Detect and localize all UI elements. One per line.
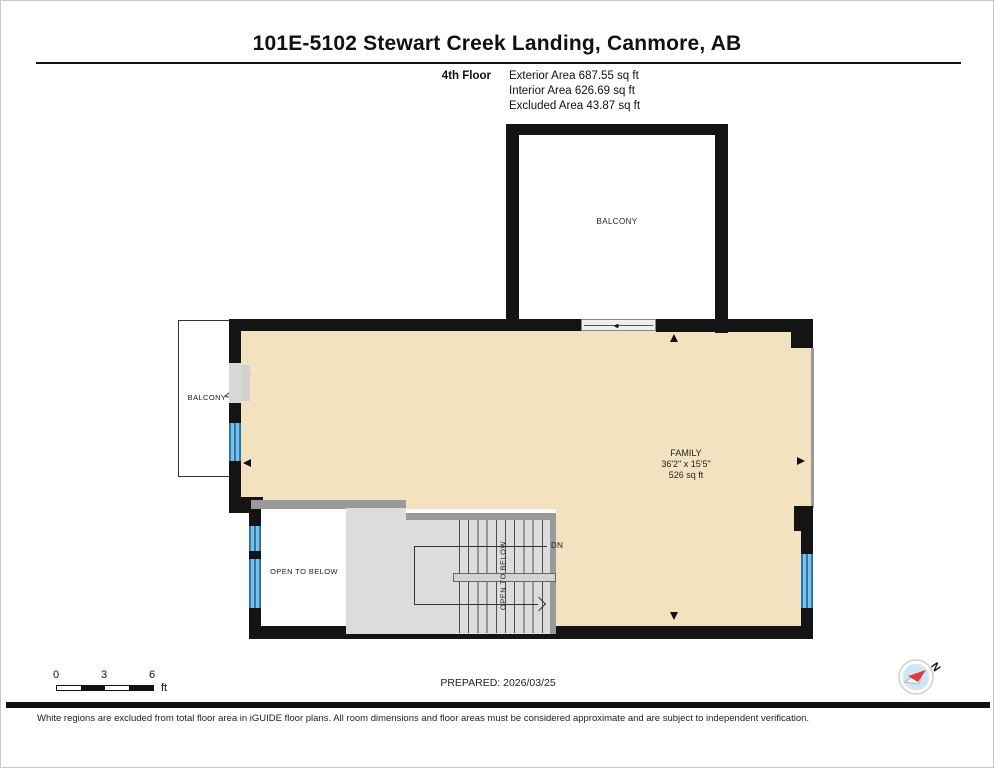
family-room-name: FAMILY (626, 448, 746, 459)
left-wall-seg-2 (229, 403, 241, 423)
right-wall-seg-1 (801, 529, 813, 556)
stair-down-label: DN (551, 541, 571, 550)
scale-unit: ft (161, 682, 167, 694)
floorplan-page: 101E-5102 Stewart Creek Landing, Canmore… (0, 0, 994, 768)
right-wall-notch-block (794, 506, 813, 531)
sliding-door (581, 319, 656, 331)
scale-tick-0: 0 (53, 669, 59, 681)
scale-bar (56, 685, 154, 691)
lowerleft-wall-seg-1 (249, 513, 261, 526)
sliding-door-track (584, 325, 653, 326)
family-room-dims: 36'2" x 15'5" (626, 459, 746, 470)
right-open-edge (811, 348, 814, 508)
balcony-top-wall-right (715, 124, 728, 333)
left-window (229, 423, 241, 461)
family-wall-top-left (229, 319, 506, 331)
stair-path-top (414, 546, 547, 547)
balcony-top-wall-left (506, 124, 519, 331)
family-floor-area (241, 331, 811, 509)
footer-divider (6, 702, 990, 708)
balcony-top-wall-top (506, 124, 728, 135)
right-window (801, 554, 813, 608)
right-wall-seg-2 (801, 608, 813, 639)
extent-arrow-left-icon (243, 459, 251, 467)
floorplan-drawing: BALCONY BALCONY (1, 1, 994, 768)
family-wall-top-right (656, 319, 813, 332)
extent-arrow-up-icon (670, 334, 678, 342)
sliding-door-arrow-icon (614, 324, 619, 329)
balcony-door-leaf (241, 365, 250, 401)
stair-path-bottom (414, 604, 538, 605)
balcony-top-label: BALCONY (567, 217, 667, 226)
open-to-below-label: OPEN TO BELOW (259, 567, 349, 576)
balcony-top-floor (515, 132, 720, 321)
compass-icon: N (895, 654, 943, 698)
balcony-top-wall-bottom-left (506, 319, 581, 331)
family-room-label: FAMILY 36'2" x 15'5" 526 sq ft (626, 448, 746, 481)
compass: N (895, 654, 943, 698)
stair-path-left (414, 546, 415, 604)
scale-tick-3: 3 (101, 669, 107, 681)
stair-open-to-below-label: OPEN TO BELOW (499, 541, 508, 611)
lowerleft-wall-seg-2 (249, 551, 261, 559)
extent-arrow-down-icon (670, 612, 678, 620)
scale-tick-6: 6 (149, 669, 155, 681)
disclaimer-text: White regions are excluded from total fl… (37, 713, 967, 724)
left-wall-seg-1 (229, 319, 241, 363)
balcony-door-opening (229, 363, 241, 403)
lowerleft-window-1 (249, 526, 261, 551)
family-floor-area-lower (556, 509, 811, 626)
stairwell-area-left (346, 508, 406, 634)
stair-border-top-right (401, 513, 556, 520)
extent-arrow-right-icon (797, 457, 805, 465)
family-wall-top-right-corner (791, 332, 813, 348)
prepared-date: PREPARED: 2026/03/25 (348, 677, 648, 689)
family-room-area: 526 sq ft (626, 470, 746, 481)
